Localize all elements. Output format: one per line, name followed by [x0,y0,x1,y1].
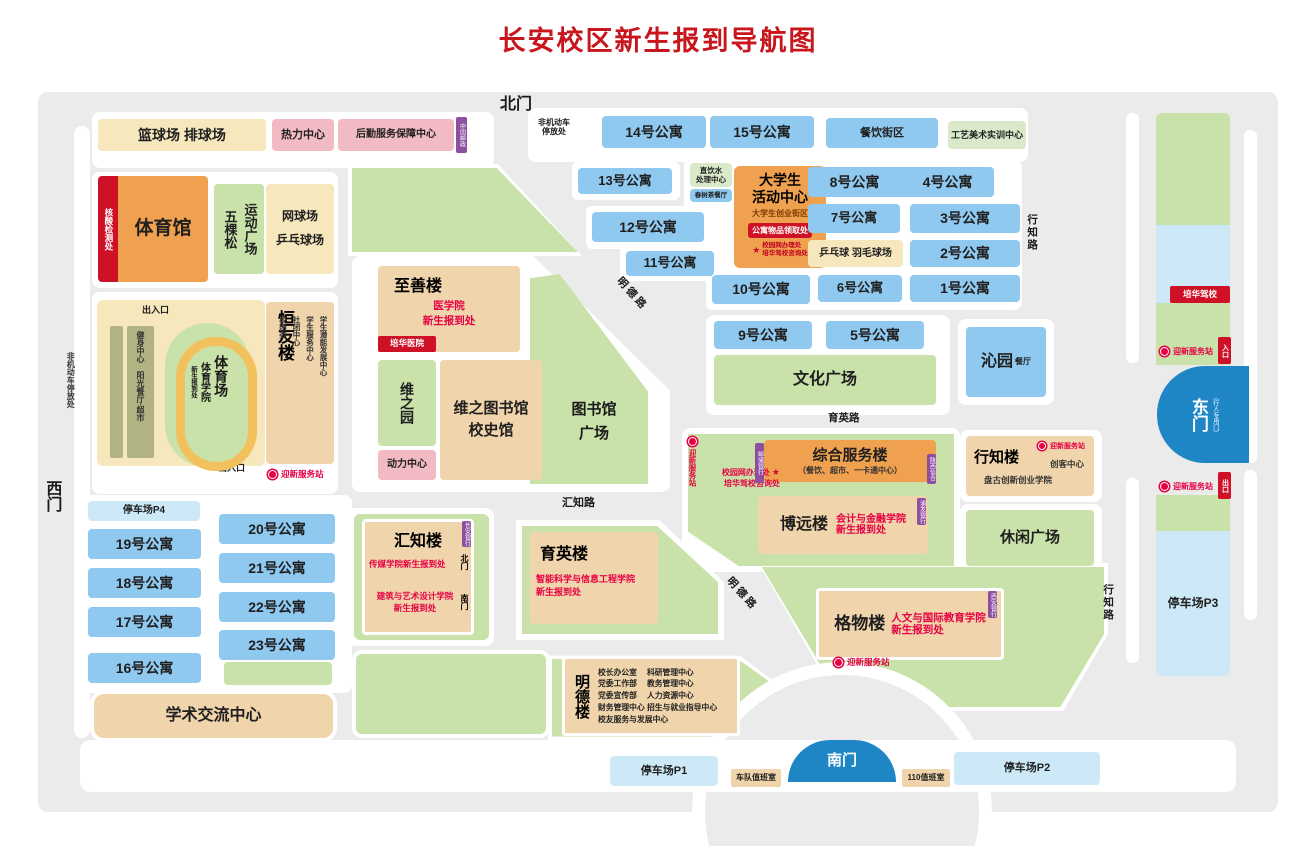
apartment-9-label: 9号公寓 [738,327,788,343]
apartment-3-label: 3号公寓 [940,210,990,226]
apartment-6: 6号公寓 [818,275,902,302]
arch-report-label: 建筑与艺术设计学院 新生报到处 [367,590,463,614]
welcome-station-east-entrance: 迎新服务站 [1160,346,1213,357]
apartment-8-label: 8号公寓 [830,174,880,190]
apartment-1: 1号公寓 [910,275,1020,302]
xingzhi-building: 行知楼 迎新服务站 创客中心 盘古创新创业学院 [966,436,1094,496]
apartment-11: 11号公寓 [626,251,714,276]
logistics-center: 后勤服务保障中心 [338,119,454,151]
yuying-building: 育英楼 智能科学与信息工程学院 新生报到处 [530,532,658,624]
qinyuan-canteen-label: 餐厅 [1015,357,1031,366]
tennis-courts: 网球场 乒乓球场 [266,184,334,274]
basketball-volleyball-label: 篮球场 排球场 [138,127,226,143]
sport-plaza-label: 运动广场 [242,203,257,255]
comprehensive-service-building: 综合服务楼 （餐饮、超市、一卡通中心） [764,440,936,482]
badminton-court-label: 乒乓球 羽毛球场 [819,248,892,260]
welcome-station-dot-icon [1160,482,1169,491]
nucleic-test-站: 核酸检测处 [98,176,118,282]
drinking-water-center: 直饮水 处理中心 [690,163,732,187]
boyuan-building: 博远楼 会计与金融学院 新生报到处 [758,496,928,554]
exit-tag: 出口 [1218,472,1231,499]
power-center-label: 动力中心 [387,459,427,471]
yuying-name-label: 育英楼 [540,540,588,564]
media-report-label: 传媒学院新生报到处 [369,558,446,570]
shaanxi-credit-tag: 陕西信合 [927,454,936,484]
apartment-12-label: 12号公寓 [619,219,677,235]
spd-bank-tag: 浦发银行 [917,498,926,525]
apartment-1-label: 1号公寓 [940,280,990,296]
apartment-22-label: 22号公寓 [248,599,306,615]
pe-college-label: 体育学院 [198,362,210,402]
huizhi-name-label: 汇知楼 [365,527,471,551]
welcome-station-stadium: 迎新服务站 [268,468,324,480]
welcome-station-gewu: 迎新服务站 [834,656,890,668]
huizhi-north-door-label: 北门 [459,554,470,570]
welcome-station-dot-icon [268,470,277,479]
west-gate-label: 西门 [42,480,60,512]
apartment-5: 5号公寓 [826,321,924,349]
wukesong-label: 五棵松 [222,210,237,249]
apartment-19: 19号公寓 [88,529,201,559]
fitness-center-label: 健身中心 [135,331,146,363]
drinking-water-label: 直饮水 处理中心 [696,166,726,184]
postal-bank-tag: 邮储银行 [755,443,764,483]
bike-parking-north-label: 非机动车 停放处 [534,118,574,136]
apartment-23: 23号公寓 [219,630,335,660]
welcome-station-label: 迎新服务站 [1173,481,1213,492]
apartment-5-label: 5号公寓 [850,327,900,343]
entrance-tag-label: 入口 [1220,344,1228,358]
police-duty-room: 110值班室 [902,769,950,787]
exit-tag-label: 出口 [1220,479,1228,493]
heating-center: 热力中心 [272,119,334,151]
parking-p2: 停车场P2 [954,752,1100,785]
welcome-station-east-exit: 迎新服务站 [1160,481,1213,492]
heating-center-label: 热力中心 [281,129,325,142]
apartment-12: 12号公寓 [592,212,704,242]
parking-p2-label: 停车场P2 [1004,762,1050,775]
apartment-2: 2号公寓 [910,240,1020,267]
hengyou-building: 恒友楼 学生潜能发展中心 学生服务中心 社团中心 校团委 [266,302,334,464]
apartment-16-label: 16号公寓 [116,660,174,676]
welcome-station-dot-icon [1038,442,1046,450]
welcome-station-dot-icon [1160,347,1169,356]
mingde-building: 明德楼 校长办公室 科研管理中心 党委工作部 教务管理中心 党委宣传部 人力资源… [562,656,740,736]
maker-center-label: 创客中心 [1050,458,1084,470]
east-gate-note-label: （行人专用门） [1211,394,1218,436]
east-green-3 [1156,495,1230,531]
weizhi-garden: 维之园 [378,360,436,446]
apartment-7-label: 7号公寓 [831,211,877,226]
leisure-plaza-label: 休闲广场 [1000,529,1060,546]
weizhi-garden-label: 维之园 [399,382,415,424]
apartment-17-label: 17号公寓 [116,614,174,630]
boyuan-report-label: 会计与金融学院 新生报到处 [836,514,906,537]
page-title: 长安校区新生报到导航图 [0,26,1316,57]
east-green-1 [1156,113,1230,225]
apartment-17: 17号公寓 [88,607,201,637]
academic-exchange-center: 学术交流中心 [90,690,337,742]
tea-restaurant: 春树茶餐厅 [690,189,732,202]
apartment-pickup-badge: 公寓物品领取处 [748,223,812,238]
medical-report-label: 医学院 新生报到处 [378,298,520,328]
star-icon: ★ [752,245,760,256]
xian-bank-tag: 西安银行 [988,591,997,618]
hengyou-departments-label: 学生潜能发展中心 学生服务中心 社团中心 校团委 [276,316,330,456]
welcome-station-dot-icon [834,658,843,667]
apartment-19-label: 19号公寓 [116,536,174,552]
craft-training-center-label: 工艺美术实训中心 [951,130,1023,140]
welcome-station-label: 迎新服务站 [687,449,698,487]
service-building-name-label: 综合服务楼 [812,447,887,464]
driving-school-label: 培华驾校 [1183,290,1217,300]
tennis-label: 网球场 [282,210,318,224]
stadium-gate-top: 出入口 [142,305,169,315]
apartment-16: 16号公寓 [88,653,201,683]
leisure-plaza: 休闲广场 [966,510,1094,566]
pangu-college-label: 盘古创新创业学院 [984,474,1052,486]
food-street-label: 餐饮街区 [860,127,904,140]
green-below-huizhilou [352,650,550,738]
china-post-tag: 中国邮政 [456,117,467,153]
apartment-21: 21号公寓 [219,553,335,583]
pe-report-label: 新生报到处 [189,366,196,399]
apartment-13: 13号公寓 [578,168,672,194]
apartment-6-label: 6号公寓 [837,281,883,296]
mingde-offices-label: 校长办公室 科研管理中心 党委工作部 教务管理中心 党委宣传部 人力资源中心 财… [598,667,717,725]
apartment-14: 14号公寓 [602,116,706,148]
yuying-report-label: 智能科学与信息工程学院 新生报到处 [536,572,635,598]
welcome-station-label: 迎新服务站 [281,468,324,480]
culture-plaza-label: 文化广场 [793,371,857,389]
parking-p3-label: 停车场P3 [1168,597,1219,611]
apartment-11-label: 11号公寓 [644,256,697,271]
service-building-sub-label: （餐饮、超市、一卡通中心） [798,466,902,475]
apartment-23-label: 23号公寓 [248,637,306,653]
fitness-strip: 健身中心 阳光餐厅·超市 [127,326,154,458]
qinyuan-canteen: 沁园 餐厅 [966,327,1046,397]
apartment-3: 3号公寓 [910,204,1020,233]
basketball-volleyball-court: 篮球场 排球场 [98,119,266,151]
huizhi-south-door-label: 南门 [459,594,470,610]
sunshine-canteen-label: 阳光餐厅·超市 [135,371,146,422]
huizhi-road-label: 汇知路 [562,497,595,510]
welcome-station-label: 迎新服务站 [1050,441,1085,451]
apartment-20-label: 20号公寓 [248,521,306,537]
star-icon: ★ [772,467,780,478]
activity-services-label: 校园网办理处 培华驾校咨询处 [762,242,808,259]
driving-consult-label: 培华驾校咨询处 [724,478,780,489]
apartment-14-label: 14号公寓 [625,124,683,140]
apartment-4-label: 4号公寓 [923,174,973,190]
wukesong-sport-plaza: 五棵松 运动广场 [214,184,264,274]
apartment-10: 10号公寓 [712,275,810,304]
weizhi-library: 维之图书馆 校史馆 [440,360,542,480]
bike-parking-west-label: 非机动车停放处 [66,352,75,408]
apartment-15: 15号公寓 [710,116,814,148]
stadium-strip [110,326,123,458]
apartment-9: 9号公寓 [714,321,812,349]
power-center: 动力中心 [378,450,436,480]
parking-p4-label: 停车场P4 [123,505,165,517]
driving-school-badge: 培华驾校 [1170,286,1230,303]
tea-restaurant-label: 春树茶餐厅 [695,192,728,199]
yuying-road-label: 育英路 [828,412,860,424]
qinyuan-label: 沁园 [981,353,1013,371]
mingde-name-label: 明德楼 [571,674,592,719]
entrance-tag: 入口 [1218,337,1231,364]
xingzhi-road-label-2: 行知路 [1102,584,1114,622]
weizhi-library-label: 维之图书馆 校史馆 [453,398,528,443]
east-gate: 东门 （行人专用门） [1157,366,1249,463]
library-plaza-label: 图书馆 广场 [546,398,642,446]
apartment-13-label: 13号公寓 [598,174,651,189]
activity-street-label: 大学生创业街区 [752,208,808,219]
logistics-center-label: 后勤服务保障中心 [356,129,436,141]
craft-training-center: 工艺美术实训中心 [948,121,1026,149]
badminton-court: 乒乓球 羽毛球场 [808,240,903,267]
apartment-18: 18号公寓 [88,568,201,598]
culture-plaza: 文化广场 [714,355,936,405]
apartment-15-label: 15号公寓 [733,124,791,140]
service-net-labels: 校园网办理处 ★ 培华驾校咨询处 [700,467,780,489]
gewu-name-label: 格物楼 [834,614,885,634]
apartment-7: 7号公寓 [808,204,900,233]
welcome-station-label: 迎新服务站 [1173,346,1213,357]
gewu-building: 格物楼 人文与国际教育学院 新生报到处 [816,588,1004,660]
parking-p4: 停车场P4 [88,501,200,521]
gymnasium-label: 体育馆 [134,218,191,240]
campus-navigation-map: 长安校区新生报到导航图 停车场P3 篮球场 排球场 [0,0,1316,846]
welcome-station-service-vertical: 迎新服务站 [687,437,698,487]
xingzhi-name-label: 行知楼 [974,446,1019,467]
nucleic-test-label: 核酸检测处 [103,208,113,251]
welcome-station-dot-icon [688,437,697,446]
fleet-duty-room: 车队值班室 [731,769,781,787]
changan-bank-tag: 长安银行 [462,521,471,547]
police-duty-label: 110值班室 [908,773,945,782]
north-gate-label: 北门 [500,96,532,114]
apartment-18-label: 18号公寓 [116,575,174,591]
parking-p1: 停车场P1 [610,756,718,786]
table-tennis-label: 乒乓球场 [276,234,324,248]
road-east-inner-bottom [1126,478,1139,663]
gewu-report-label: 人文与国际教育学院 新生报到处 [891,612,986,636]
peihua-hospital-badge: 培华医院 [378,336,436,352]
xingzhi-road-label-1: 行知路 [1026,214,1038,252]
apartment-20: 20号公寓 [219,514,335,544]
peihua-hospital-label: 培华医院 [390,339,424,349]
huizhi-building: 汇知楼 传媒学院新生报到处 北门 建筑与艺术设计学院 新生报到处 南门 [362,519,474,635]
road-east-inner-top [1126,113,1139,363]
stadium-name-label: 体育场 [213,355,229,397]
welcome-station-xingzhi: 迎新服务站 [1038,441,1085,451]
bottom-left-green-strip [224,662,332,685]
road-east-edge-bottom [1244,470,1257,620]
welcome-station-label: 迎新服务站 [847,656,890,668]
gymnasium: 体育馆 [118,176,208,282]
parking-p1-label: 停车场P1 [641,765,687,778]
zhishan-name-label: 至善楼 [394,272,442,296]
academic-exchange-label: 学术交流中心 [165,707,261,725]
activity-center-name-label: 大学生 活动中心 [752,172,808,206]
apartment-8-4: 8号公寓 4号公寓 [808,167,994,197]
apartment-21-label: 21号公寓 [248,560,306,576]
east-gate-label: 东门 [1188,398,1208,432]
fleet-duty-label: 车队值班室 [736,773,776,782]
apartment-22: 22号公寓 [219,592,335,622]
boyuan-name-label: 博远楼 [780,516,828,534]
apartment-2-label: 2号公寓 [940,245,990,261]
south-gate-label: 南门 [827,752,857,769]
food-street: 餐饮街区 [826,118,938,148]
apartment-10-label: 10号公寓 [732,281,790,297]
parking-p3: 停车场P3 [1156,531,1230,676]
